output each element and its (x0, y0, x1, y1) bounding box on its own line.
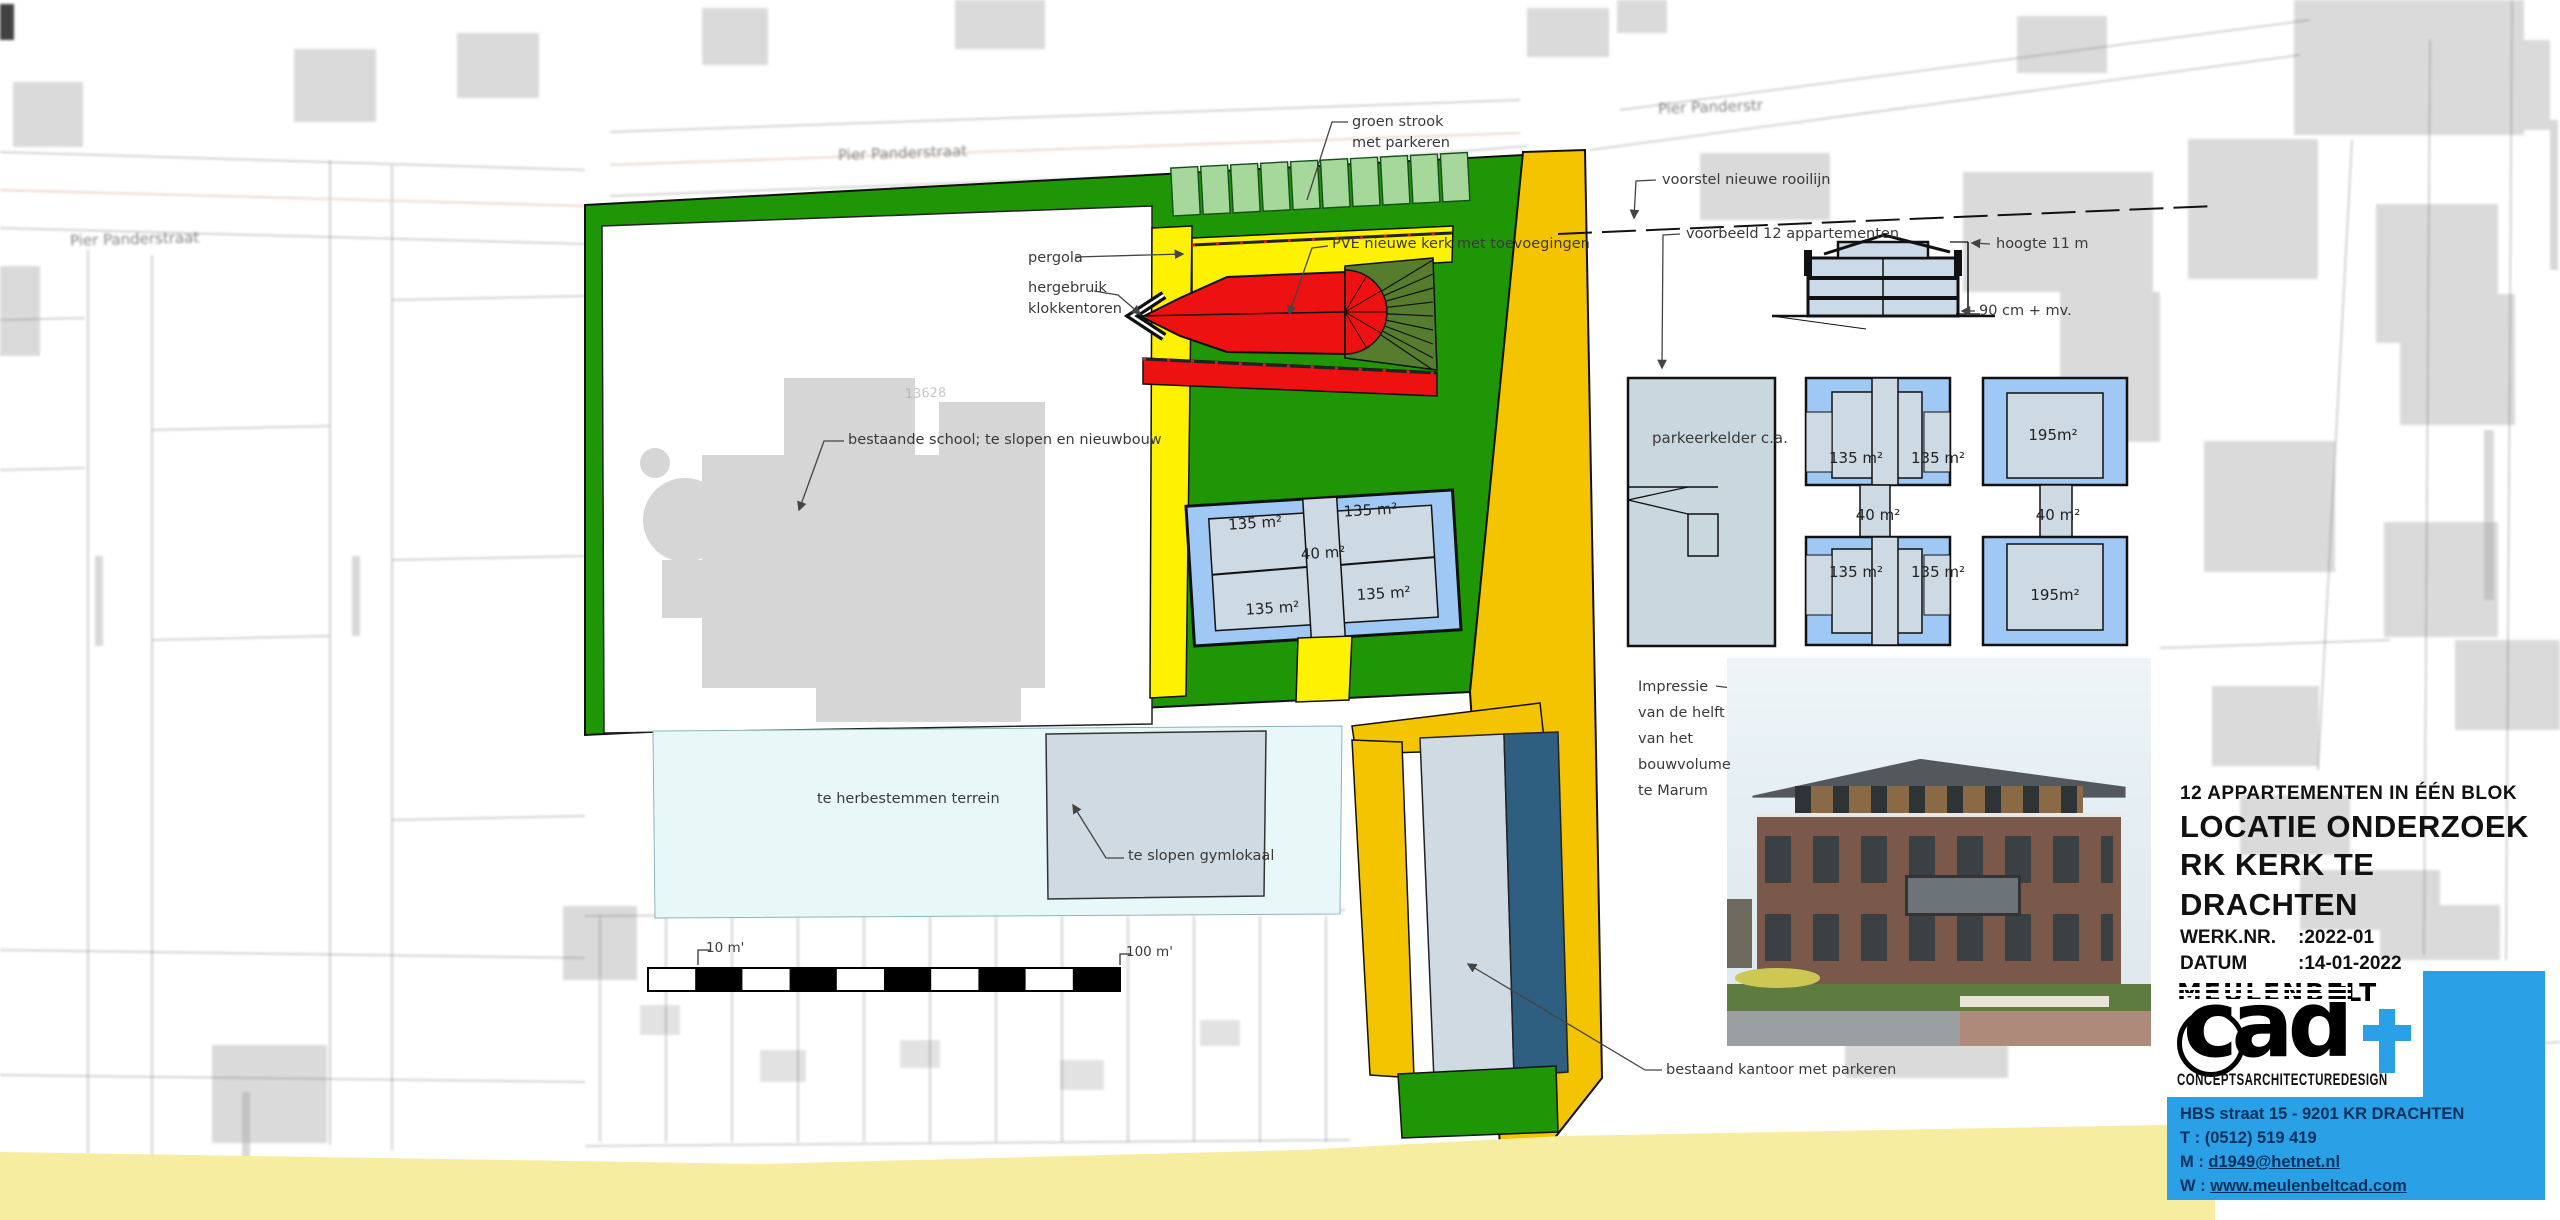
photo-pebbles (1960, 996, 2108, 1008)
title-subtitle: 12 APPARTEMENTEN IN ÉÉN BLOK (2180, 783, 2552, 805)
plan-unit-area: 135 m² (1356, 583, 1411, 604)
unit-area-label: 40 m² (2036, 506, 2080, 524)
tagline-word: ARCHITECTURE (2245, 1070, 2341, 1089)
tagline-word: DESIGN (2341, 1070, 2388, 1089)
photo-windows-row2 (1765, 914, 2113, 961)
tagline-word: CONCEPTS (2177, 1070, 2245, 1089)
contact-web-row: W : www.meulenbeltcad.com (2180, 1174, 2464, 1198)
email-link[interactable]: d1949@hetnet.nl (2208, 1153, 2340, 1171)
unit-area-label: 135 m² (1911, 563, 1965, 581)
contact-phone: T : (0512) 519 419 (2180, 1126, 2464, 1150)
parcel-number: 13628 (905, 386, 947, 402)
photo-balcony (1905, 875, 2021, 916)
label-line: hergebruik (1028, 278, 1122, 299)
label-line: bouwvolume (1638, 752, 1731, 778)
unit-area-label: 135 m² (1829, 563, 1883, 581)
main-road-pale-yellow (0, 1124, 2215, 1220)
contact-address: HBS straat 15 - 9201 KR DRACHTEN (2180, 1102, 2464, 1126)
label-height: hoogte 11 m (1996, 234, 2089, 255)
label-reuse-terrain: te herbestemmen terrein (817, 789, 1000, 810)
title-line-2: RK KERK TE DRACHTEN (2180, 845, 2552, 925)
photo-side-building (1727, 899, 1752, 969)
scale-label-10m: 10 m' (706, 938, 744, 959)
label-line: Impressie (1638, 674, 1731, 700)
unit-plan-135-bottom: 135 m² 135 m² (1806, 537, 1965, 645)
label-school: bestaande school; te slopen en nieuwbouw (848, 430, 1162, 451)
logo-stripe (2175, 987, 2351, 990)
parking-basement-diagram (1628, 378, 1775, 646)
plan-unit-area: 135 m² (1228, 512, 1283, 533)
plan-unit-area: 135 m² (1343, 499, 1398, 520)
apartment-block-footprint: 135 m² 135 m² 40 m² 135 m² 135 m² (1186, 490, 1461, 646)
row-value: :2022-01 (2298, 925, 2374, 951)
unit-area-label: 195m² (2028, 426, 2077, 444)
title-row-werknr: WERK.NR. :2022-01 (2180, 925, 2552, 951)
label-office: bestaand kantoor met parkeren (1666, 1060, 1896, 1081)
unit-area-label: 135 m² (1911, 449, 1965, 467)
website-link[interactable]: www.meulenbeltcad.com (2210, 1177, 2407, 1195)
unit-area-label: 40 m² (1856, 506, 1900, 524)
photo-shrubs (1735, 968, 1820, 987)
label-pergola: pergola (1028, 248, 1083, 269)
impression-photo (1727, 658, 2151, 1046)
photo-pavement (1727, 1011, 2151, 1046)
label-green-strip: groen strook met parkeren (1352, 112, 1450, 154)
label-gym: te slopen gymlokaal (1128, 846, 1274, 867)
label-bell-tower: hergebruik klokkentoren (1028, 278, 1122, 320)
label-line: van het (1638, 726, 1731, 752)
logo-stripe (2175, 999, 2351, 1002)
label-building-line: voorstel nieuwe rooilijn (1662, 170, 1831, 191)
row-label: WERK.NR. (2180, 925, 2298, 951)
unit-plan-135-top: 135 m² 135 m² (1806, 378, 1965, 485)
logo-plus-icon (2379, 1009, 2395, 1073)
unit-plan-195-bottom: 195m² (1983, 537, 2127, 645)
green-strip-south (1398, 1066, 1558, 1138)
title-block: 12 APPARTEMENTEN IN ÉÉN BLOK LOCATIE OND… (2180, 783, 2552, 1003)
label-line: van de helft (1638, 700, 1731, 726)
company-logo: MEULENBELT cad CONCEPTS ARCHITECTURE DES… (2167, 971, 2423, 1097)
existing-office-building (1420, 734, 1514, 1081)
office-parking-strip (1504, 732, 1568, 1076)
contact-block: HBS straat 15 - 9201 KR DRACHTEN T : (05… (2180, 1102, 2464, 1198)
label-parking-basement: parkeerkelder c.a. (1652, 428, 1788, 449)
contact-email-row: M : d1949@hetnet.nl (2180, 1150, 2464, 1174)
logo-c-ring-icon (2177, 1009, 2245, 1077)
label-line: met parkeren (1352, 133, 1450, 154)
email-prefix: M : (2180, 1150, 2204, 1174)
label-pve-church: PVE nieuwe kerk met toevoegingen (1332, 234, 1590, 255)
label-impression: Impressie van de helft van het bouwvolum… (1638, 674, 1731, 804)
elevation-sketch (1772, 235, 1995, 329)
label-level: 90 cm + mv. (1979, 301, 2072, 322)
unit-area-label: 195m² (2030, 586, 2079, 604)
scale-label-100m: 100 m' (1126, 942, 1173, 963)
title-line-1: LOCATIE ONDERZOEK (2180, 809, 2552, 845)
yellow-connector-path (1296, 636, 1352, 702)
label-line: te Marum (1638, 778, 1731, 804)
label-line: klokkentoren (1028, 299, 1122, 320)
unit-area-label: 135 m² (1829, 449, 1883, 467)
plan-unit-area: 40 m² (1300, 543, 1346, 564)
label-line: groen strook (1352, 112, 1450, 133)
plan-unit-area: 135 m² (1245, 598, 1300, 619)
unit-plan-195-top: 195m² (1983, 378, 2127, 485)
web-prefix: W : (2180, 1174, 2206, 1198)
orange-road-left-arm (1352, 740, 1414, 1078)
logo-stripe (2175, 993, 2351, 996)
site-plan-drawing: Pier Panderstraat Pier Panderstraat Pier… (0, 0, 2560, 1220)
label-12-apartments: voorbeeld 12 appartementen (1686, 224, 1899, 245)
logo-tagline: CONCEPTS ARCHITECTURE DESIGN (2177, 1070, 2350, 1089)
